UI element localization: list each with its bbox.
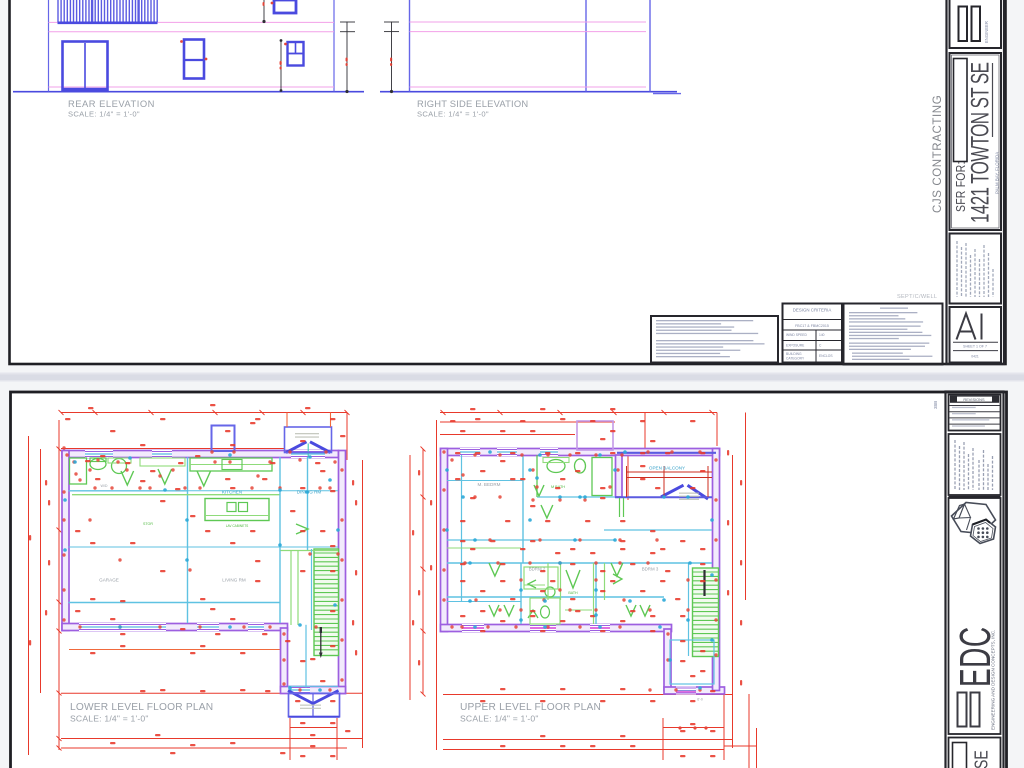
svg-text:UPPER LEVEL FLOOR PLAN: UPPER LEVEL FLOOR PLAN	[460, 702, 601, 713]
svg-text:6'-0: 6'-0	[697, 698, 703, 702]
svg-text:GARAGE: GARAGE	[99, 578, 119, 583]
svg-text:OPEN BALCONY: OPEN BALCONY	[649, 466, 685, 471]
svg-text:SCALE: 1/4" = 1'-0": SCALE: 1/4" = 1'-0"	[68, 110, 140, 119]
svg-text:SHEET 1 OF 7: SHEET 1 OF 7	[963, 345, 987, 349]
svg-text:BATH: BATH	[568, 591, 578, 595]
svg-text:KITCHEN: KITCHEN	[222, 490, 242, 495]
svg-text:DESIGN CRITERIA: DESIGN CRITERIA	[793, 308, 832, 313]
svg-text:SEPT/C/WELL: SEPT/C/WELL	[897, 294, 937, 300]
svg-text:ENCLOS: ENCLOS	[819, 354, 833, 358]
svg-text:LAV CABINETS: LAV CABINETS	[226, 524, 249, 528]
svg-text:EXPOSURE: EXPOSURE	[786, 344, 805, 348]
svg-text:SCALE: 1/4" = 1'-0": SCALE: 1/4" = 1'-0"	[70, 714, 149, 724]
svg-text:REAR ELEVATION: REAR ELEVATION	[68, 98, 155, 109]
svg-text:LOWER LEVEL FLOOR PLAN: LOWER LEVEL FLOOR PLAN	[70, 702, 213, 713]
svg-text:BUILDING: BUILDING	[786, 352, 802, 356]
svg-text:BDRM 3: BDRM 3	[642, 567, 659, 572]
svg-text:SE: SE	[970, 750, 992, 768]
svg-text:RIGHT SIDE ELEVATION: RIGHT SIDE ELEVATION	[417, 98, 528, 109]
svg-text:WIND SPEED: WIND SPEED	[786, 333, 808, 337]
svg-text:DINING RM: DINING RM	[297, 490, 322, 495]
svg-text:CATEGORY: CATEGORY	[786, 357, 805, 361]
svg-text:0421: 0421	[971, 355, 979, 359]
svg-text:FBC17 & FBMC2015: FBC17 & FBMC2015	[795, 324, 829, 328]
svg-text:PALM BAY, FLORIDA: PALM BAY, FLORIDA	[995, 152, 1000, 194]
svg-text:SCALE: 1/4" = 1'-0": SCALE: 1/4" = 1'-0"	[460, 714, 539, 724]
svg-text:ENGINEERING AND DESIGN CONCEPT: ENGINEERING AND DESIGN CONCEPTS, INC.	[991, 630, 996, 730]
svg-text:REVISIONS: REVISIONS	[963, 397, 985, 402]
svg-text:LIVING RM: LIVING RM	[222, 578, 246, 583]
svg-text:SFR FOR:: SFR FOR:	[953, 161, 968, 212]
svg-text:M. BEDRM: M. BEDRM	[478, 482, 501, 487]
svg-text:SCALE: 1/4" = 1'-0": SCALE: 1/4" = 1'-0"	[417, 110, 489, 119]
svg-text:W/D: W/D	[101, 484, 108, 488]
svg-text:ENGINEER: ENGINEER	[984, 21, 989, 43]
svg-text:1421 TOWTON ST SE: 1421 TOWTON ST SE	[968, 62, 995, 223]
svg-text:CJS CONTRACTING: CJS CONTRACTING	[932, 95, 944, 213]
svg-text:STOR: STOR	[143, 522, 153, 526]
svg-text:38B: 38B	[933, 401, 938, 409]
svg-text:140: 140	[819, 333, 825, 337]
